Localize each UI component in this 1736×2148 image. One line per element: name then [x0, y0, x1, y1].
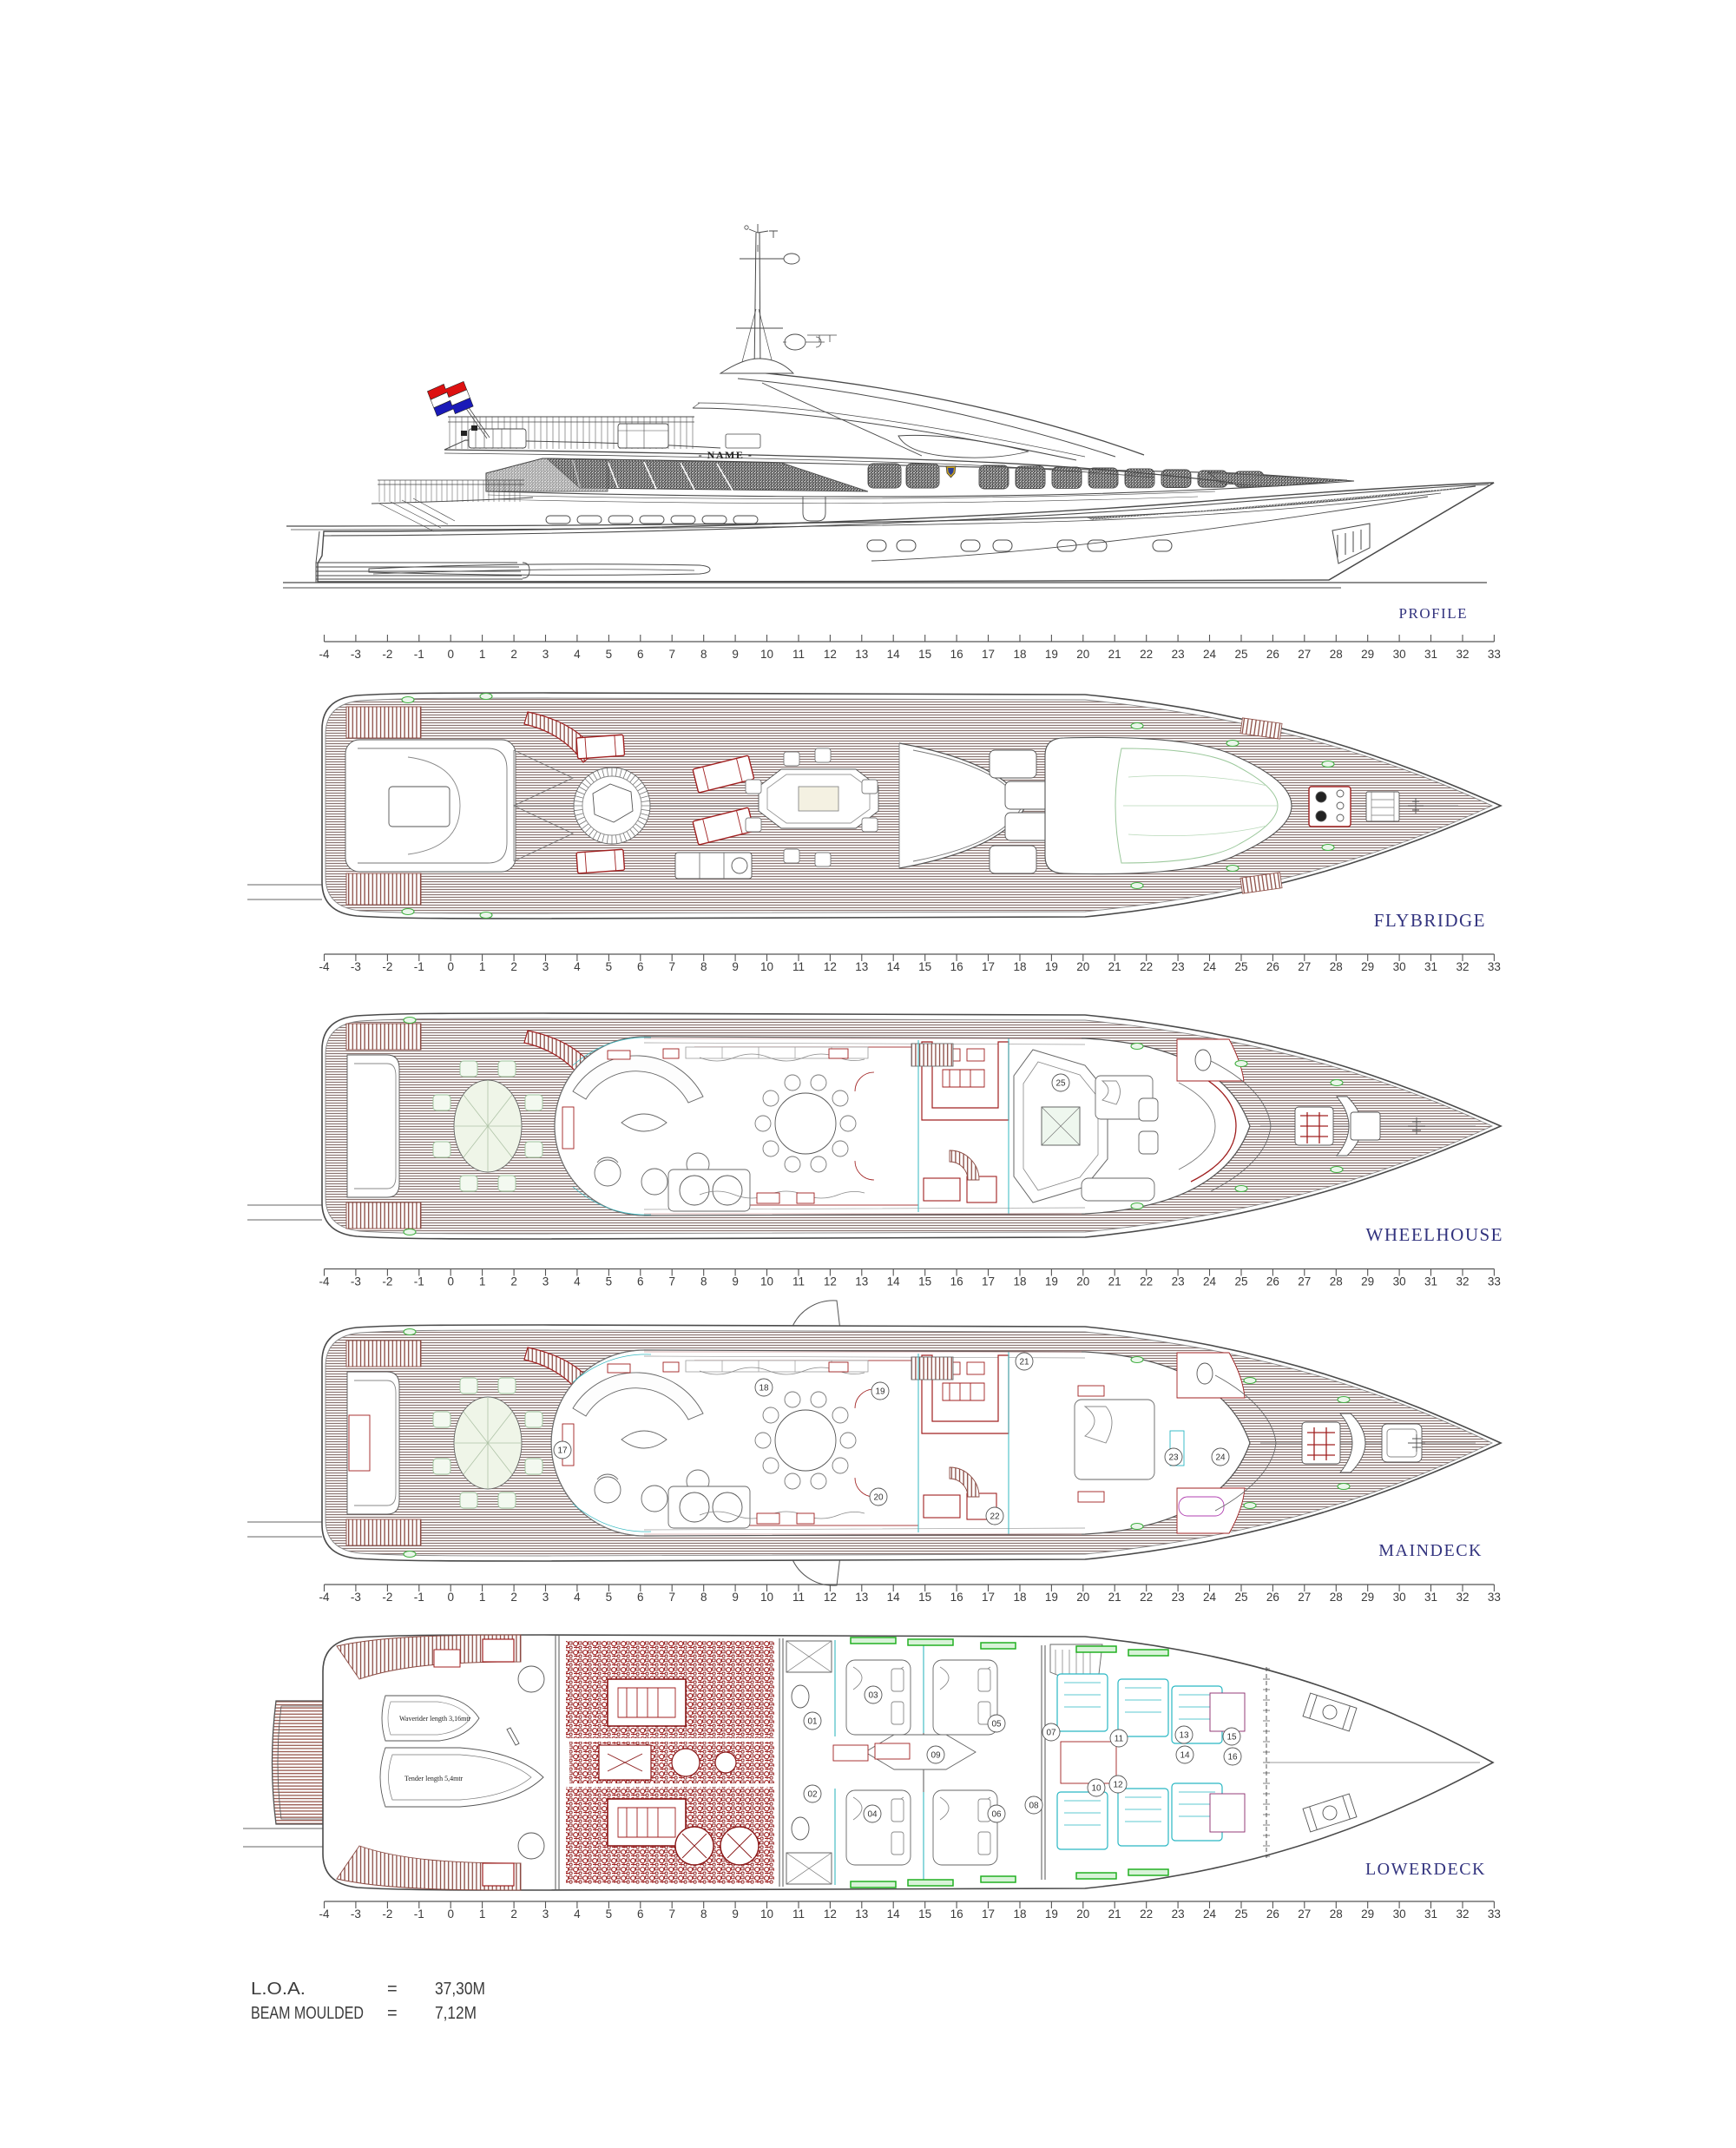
svg-text:22: 22 — [1140, 1591, 1153, 1604]
svg-text:26: 26 — [1266, 960, 1279, 973]
svg-text:03: 03 — [868, 1691, 878, 1701]
svg-text:24: 24 — [1203, 1908, 1217, 1921]
svg-text:2: 2 — [510, 648, 517, 661]
svg-text:16: 16 — [950, 1908, 963, 1921]
svg-text:29: 29 — [1361, 1591, 1374, 1604]
svg-text:MAINDECK: MAINDECK — [1378, 1541, 1483, 1560]
svg-text:7,12M: 7,12M — [435, 2004, 477, 2023]
svg-text:21: 21 — [1108, 648, 1121, 661]
svg-text:8: 8 — [700, 1908, 707, 1921]
svg-text:23: 23 — [1172, 1908, 1185, 1921]
svg-text:20: 20 — [873, 1493, 884, 1503]
svg-text:22: 22 — [1140, 1275, 1153, 1288]
svg-text:32: 32 — [1456, 1591, 1469, 1604]
svg-text:9: 9 — [732, 1591, 739, 1604]
svg-text:2: 2 — [510, 1591, 517, 1604]
svg-text:18: 18 — [1013, 648, 1026, 661]
svg-text:15: 15 — [918, 648, 931, 661]
svg-text:29: 29 — [1361, 1275, 1374, 1288]
svg-text:3: 3 — [542, 1275, 549, 1288]
svg-text:11: 11 — [1115, 1735, 1124, 1744]
svg-text:28: 28 — [1330, 648, 1343, 661]
svg-text:30: 30 — [1393, 648, 1406, 661]
svg-text:10: 10 — [760, 1275, 773, 1288]
svg-text:-2: -2 — [382, 1275, 392, 1288]
svg-text:31: 31 — [1424, 1275, 1437, 1288]
svg-text:15: 15 — [918, 1275, 931, 1288]
svg-text:21: 21 — [1108, 1275, 1121, 1288]
svg-text:18: 18 — [759, 1384, 769, 1394]
svg-text:5: 5 — [606, 1275, 613, 1288]
svg-text:22: 22 — [1140, 648, 1153, 661]
svg-text:25: 25 — [1234, 1908, 1247, 1921]
svg-text:7: 7 — [668, 1908, 675, 1921]
svg-text:16: 16 — [950, 648, 963, 661]
svg-text:-4: -4 — [319, 1275, 329, 1288]
svg-text:20: 20 — [1076, 1908, 1089, 1921]
svg-text:L.O.A.: L.O.A. — [251, 1980, 306, 1999]
svg-text:12: 12 — [824, 960, 837, 973]
svg-text:08: 08 — [1029, 1802, 1039, 1811]
svg-text:21: 21 — [1108, 960, 1121, 973]
svg-text:01: 01 — [807, 1717, 818, 1727]
svg-text:19: 19 — [1045, 1591, 1058, 1604]
svg-text:-4: -4 — [319, 1908, 329, 1921]
svg-text:25: 25 — [1055, 1079, 1066, 1089]
svg-text:26: 26 — [1266, 1275, 1279, 1288]
svg-text:5: 5 — [606, 648, 613, 661]
svg-text:12: 12 — [824, 1275, 837, 1288]
svg-text:11: 11 — [792, 1908, 805, 1921]
svg-text:09: 09 — [930, 1751, 941, 1761]
svg-text:WHEELHOUSE: WHEELHOUSE — [1366, 1224, 1503, 1245]
svg-text:25: 25 — [1234, 1591, 1247, 1604]
svg-text:23: 23 — [1172, 1275, 1185, 1288]
svg-text:14: 14 — [887, 1908, 901, 1921]
svg-text:12: 12 — [824, 1908, 837, 1921]
svg-text:9: 9 — [732, 1275, 739, 1288]
svg-text:30: 30 — [1393, 1591, 1406, 1604]
svg-text:18: 18 — [1013, 960, 1026, 973]
svg-text:0: 0 — [447, 1591, 454, 1604]
svg-text:28: 28 — [1330, 1275, 1343, 1288]
svg-text:LOWERDECK: LOWERDECK — [1365, 1860, 1486, 1879]
svg-text:33: 33 — [1488, 648, 1501, 661]
svg-text:05: 05 — [991, 1720, 1002, 1730]
svg-text:FLYBRIDGE: FLYBRIDGE — [1374, 910, 1486, 931]
svg-text:3: 3 — [542, 648, 549, 661]
svg-text:2: 2 — [510, 1908, 517, 1921]
svg-text:10: 10 — [760, 960, 773, 973]
svg-text:20: 20 — [1076, 1275, 1089, 1288]
svg-text:3: 3 — [542, 1908, 549, 1921]
svg-text:31: 31 — [1424, 1908, 1437, 1921]
svg-text:17: 17 — [982, 1591, 995, 1604]
svg-text:32: 32 — [1456, 960, 1469, 973]
svg-text:14: 14 — [887, 1275, 901, 1288]
svg-text:28: 28 — [1330, 960, 1343, 973]
svg-text:-1: -1 — [414, 1275, 424, 1288]
svg-text:12: 12 — [824, 1591, 837, 1604]
svg-text:20: 20 — [1076, 648, 1089, 661]
svg-text:4: 4 — [574, 1275, 581, 1288]
svg-text:17: 17 — [557, 1446, 568, 1456]
svg-text:20: 20 — [1076, 1591, 1089, 1604]
svg-text:24: 24 — [1203, 1275, 1217, 1288]
svg-text:1: 1 — [479, 960, 486, 973]
svg-text:23: 23 — [1172, 648, 1185, 661]
svg-text:-4: -4 — [319, 648, 329, 661]
svg-text:27: 27 — [1298, 1275, 1311, 1288]
svg-text:BEAM MOULDED: BEAM MOULDED — [251, 2004, 364, 2023]
svg-text:2: 2 — [510, 1275, 517, 1288]
svg-text:-1: -1 — [414, 960, 424, 973]
svg-text:1: 1 — [479, 1591, 486, 1604]
svg-text:30: 30 — [1393, 1275, 1406, 1288]
svg-text:17: 17 — [982, 648, 995, 661]
svg-text:32: 32 — [1456, 1908, 1469, 1921]
svg-text:24: 24 — [1203, 960, 1217, 973]
svg-text:32: 32 — [1456, 1275, 1469, 1288]
svg-text:16: 16 — [950, 960, 963, 973]
svg-text:27: 27 — [1298, 648, 1311, 661]
svg-text:12: 12 — [824, 648, 837, 661]
svg-text:29: 29 — [1361, 1908, 1374, 1921]
svg-text:24: 24 — [1203, 1591, 1217, 1604]
svg-text:8: 8 — [700, 648, 707, 661]
svg-text:27: 27 — [1298, 1591, 1311, 1604]
svg-text:16: 16 — [1227, 1753, 1238, 1763]
svg-text:3: 3 — [542, 1591, 549, 1604]
svg-text:1: 1 — [479, 1908, 486, 1921]
svg-text:18: 18 — [1013, 1908, 1026, 1921]
svg-text:19: 19 — [1045, 960, 1058, 973]
svg-text:33: 33 — [1488, 960, 1501, 973]
svg-text:6: 6 — [637, 1275, 644, 1288]
svg-text:25: 25 — [1234, 648, 1247, 661]
svg-text:10: 10 — [760, 1591, 773, 1604]
svg-text:22: 22 — [990, 1512, 1000, 1522]
svg-text:28: 28 — [1330, 1908, 1343, 1921]
svg-text:24: 24 — [1215, 1453, 1226, 1463]
svg-text:8: 8 — [700, 1275, 707, 1288]
svg-text:25: 25 — [1234, 960, 1247, 973]
svg-text:11: 11 — [792, 1591, 805, 1604]
svg-text:04: 04 — [867, 1810, 878, 1820]
svg-text:10: 10 — [760, 648, 773, 661]
svg-text:8: 8 — [700, 960, 707, 973]
svg-text:-1: -1 — [414, 1591, 424, 1604]
svg-text:27: 27 — [1298, 1908, 1311, 1921]
svg-text:-2: -2 — [382, 1591, 392, 1604]
svg-text:29: 29 — [1361, 648, 1374, 661]
svg-text:32: 32 — [1456, 648, 1469, 661]
svg-text:-3: -3 — [351, 960, 361, 973]
svg-text:31: 31 — [1424, 648, 1437, 661]
svg-text:9: 9 — [732, 960, 739, 973]
svg-text:17: 17 — [982, 1908, 995, 1921]
svg-text:PROFILE: PROFILE — [1399, 605, 1468, 622]
svg-text:-2: -2 — [382, 1908, 392, 1921]
svg-text:31: 31 — [1424, 960, 1437, 973]
svg-text:14: 14 — [887, 960, 901, 973]
svg-text:14: 14 — [887, 1591, 901, 1604]
svg-text:26: 26 — [1266, 1908, 1279, 1921]
svg-text:4: 4 — [574, 1591, 581, 1604]
svg-text:15: 15 — [918, 960, 931, 973]
svg-text:9: 9 — [732, 1908, 739, 1921]
svg-text:0: 0 — [447, 960, 454, 973]
svg-text:33: 33 — [1488, 1275, 1501, 1288]
svg-text:Tender length 5,4mtr: Tender length 5,4mtr — [404, 1775, 464, 1782]
svg-text:7: 7 — [668, 1591, 675, 1604]
svg-text:7: 7 — [668, 960, 675, 973]
svg-text:30: 30 — [1393, 1908, 1406, 1921]
svg-text:17: 17 — [982, 1275, 995, 1288]
svg-text:15: 15 — [1226, 1733, 1237, 1743]
svg-text:31: 31 — [1424, 1591, 1437, 1604]
svg-text:-2: -2 — [382, 960, 392, 973]
svg-text:7: 7 — [668, 648, 675, 661]
svg-text:9: 9 — [732, 648, 739, 661]
svg-text:18: 18 — [1013, 1591, 1026, 1604]
svg-text:13: 13 — [855, 1908, 868, 1921]
svg-text:2: 2 — [510, 960, 517, 973]
svg-text:19: 19 — [875, 1387, 885, 1397]
svg-text:37,30M: 37,30M — [435, 1980, 485, 1999]
svg-text:6: 6 — [637, 960, 644, 973]
svg-text:17: 17 — [982, 960, 995, 973]
svg-text:6: 6 — [637, 1908, 644, 1921]
svg-text:1: 1 — [479, 1275, 486, 1288]
svg-text:22: 22 — [1140, 1908, 1153, 1921]
svg-text:25: 25 — [1234, 1275, 1247, 1288]
svg-text:6: 6 — [637, 648, 644, 661]
svg-text:15: 15 — [918, 1591, 931, 1604]
svg-text:0: 0 — [447, 648, 454, 661]
svg-text:13: 13 — [855, 648, 868, 661]
svg-text:11: 11 — [792, 648, 805, 661]
svg-text:=: = — [387, 1980, 398, 1999]
svg-text:21: 21 — [1108, 1591, 1121, 1604]
svg-text:33: 33 — [1488, 1908, 1501, 1921]
svg-text:30: 30 — [1393, 960, 1406, 973]
svg-text:=: = — [387, 2004, 398, 2023]
svg-text:-4: -4 — [319, 960, 329, 973]
svg-text:7: 7 — [668, 1275, 675, 1288]
svg-text:27: 27 — [1298, 960, 1311, 973]
svg-text:20: 20 — [1076, 960, 1089, 973]
svg-text:5: 5 — [606, 960, 613, 973]
svg-text:23: 23 — [1168, 1453, 1179, 1463]
svg-text:22: 22 — [1140, 960, 1153, 973]
svg-text:06: 06 — [991, 1810, 1002, 1820]
svg-text:26: 26 — [1266, 1591, 1279, 1604]
svg-text:-3: -3 — [351, 648, 361, 661]
svg-text:0: 0 — [447, 1275, 454, 1288]
svg-text:29: 29 — [1361, 960, 1374, 973]
svg-text:11: 11 — [792, 960, 805, 973]
svg-text:19: 19 — [1045, 1275, 1058, 1288]
svg-text:19: 19 — [1045, 648, 1058, 661]
svg-text:21: 21 — [1108, 1908, 1121, 1921]
svg-text:8: 8 — [700, 1591, 707, 1604]
svg-text:-3: -3 — [351, 1275, 361, 1288]
svg-text:13: 13 — [855, 960, 868, 973]
svg-text:24: 24 — [1203, 648, 1217, 661]
svg-text:-2: -2 — [382, 648, 392, 661]
svg-text:26: 26 — [1266, 648, 1279, 661]
svg-text:23: 23 — [1172, 1591, 1185, 1604]
svg-text:33: 33 — [1488, 1591, 1501, 1604]
svg-text:5: 5 — [606, 1908, 613, 1921]
svg-text:-3: -3 — [351, 1591, 361, 1604]
svg-text:10: 10 — [1091, 1784, 1101, 1794]
svg-text:13: 13 — [1179, 1731, 1189, 1741]
svg-text:11: 11 — [792, 1275, 805, 1288]
svg-text:4: 4 — [574, 1908, 581, 1921]
svg-text:6: 6 — [637, 1591, 644, 1604]
svg-text:5: 5 — [606, 1591, 613, 1604]
svg-text:0: 0 — [447, 1908, 454, 1921]
svg-text:19: 19 — [1045, 1908, 1058, 1921]
svg-text:4: 4 — [574, 960, 581, 973]
svg-text:07: 07 — [1046, 1729, 1056, 1738]
svg-text:16: 16 — [950, 1591, 963, 1604]
svg-text:-3: -3 — [351, 1908, 361, 1921]
svg-text:21: 21 — [1019, 1358, 1029, 1367]
svg-text:02: 02 — [807, 1790, 818, 1800]
svg-text:-1: -1 — [414, 648, 424, 661]
svg-text:14: 14 — [1180, 1751, 1190, 1761]
svg-text:- NAME -: - NAME - — [699, 449, 753, 461]
svg-text:23: 23 — [1172, 960, 1185, 973]
svg-text:4: 4 — [574, 648, 581, 661]
svg-text:3: 3 — [542, 960, 549, 973]
svg-text:15: 15 — [918, 1908, 931, 1921]
svg-text:10: 10 — [760, 1908, 773, 1921]
svg-text:13: 13 — [855, 1591, 868, 1604]
svg-text:14: 14 — [887, 648, 901, 661]
svg-text:1: 1 — [479, 648, 486, 661]
svg-text:-1: -1 — [414, 1908, 424, 1921]
svg-text:13: 13 — [855, 1275, 868, 1288]
svg-text:16: 16 — [950, 1275, 963, 1288]
svg-text:Waverider length 3,16mtr: Waverider length 3,16mtr — [399, 1715, 471, 1723]
svg-text:12: 12 — [1113, 1781, 1123, 1790]
svg-text:18: 18 — [1013, 1275, 1026, 1288]
svg-text:-4: -4 — [319, 1591, 329, 1604]
svg-text:28: 28 — [1330, 1591, 1343, 1604]
